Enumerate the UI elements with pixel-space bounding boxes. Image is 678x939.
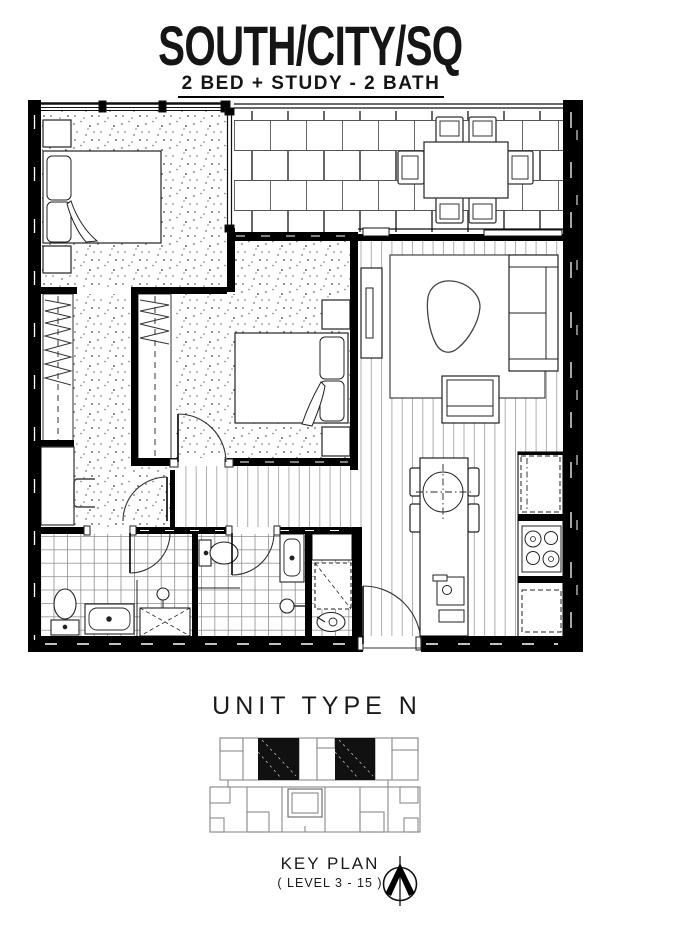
toilet [54, 589, 76, 619]
floor-plan [0, 85, 678, 665]
dishwasher [522, 590, 561, 632]
project-title-wrap: SOUTH/CITY/SQ [0, 18, 620, 74]
living-room [361, 255, 558, 423]
tv-unit [361, 268, 382, 358]
wall-bench [518, 452, 563, 637]
unit-type-label: UNIT TYPE N [177, 692, 457, 721]
glazing [228, 111, 232, 232]
sofa [509, 255, 558, 371]
armchair [442, 376, 499, 423]
balustrade [234, 104, 563, 108]
shower-rose [280, 599, 294, 613]
project-title: SOUTH/CITY/SQ [158, 18, 462, 74]
round-sink [423, 472, 463, 512]
shower-rose [157, 588, 169, 600]
linen-cupboard [312, 534, 352, 560]
north-arrow-icon [375, 850, 425, 912]
key-plan-diagram [200, 733, 440, 837]
dining-table [424, 142, 508, 198]
floor-plan-page: SOUTH/CITY/SQ 2 BED + STUDY - 2 BATH [0, 0, 678, 939]
